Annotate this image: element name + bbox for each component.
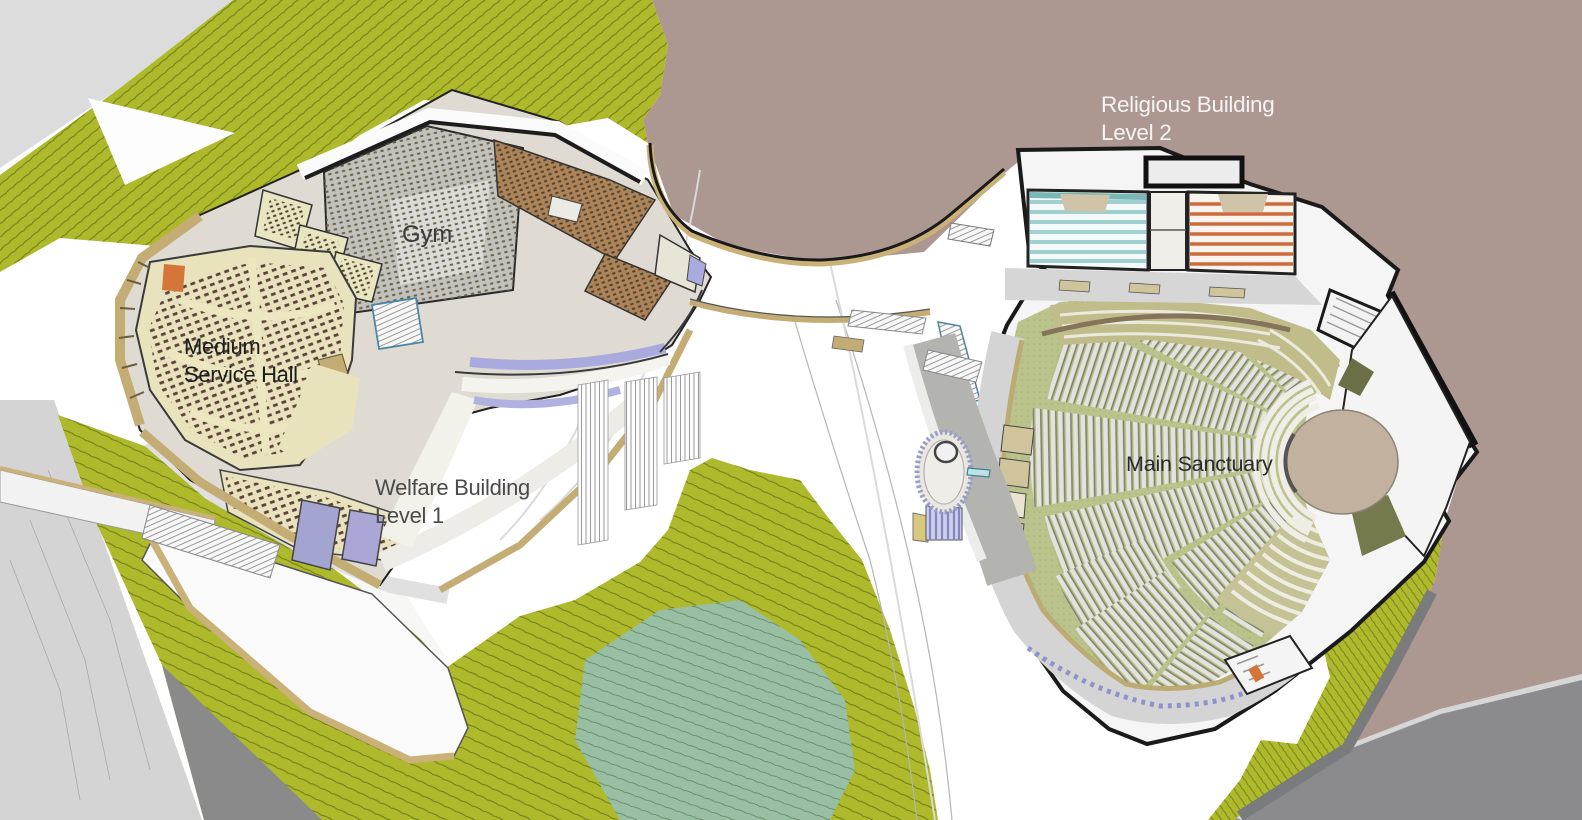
svg-text:Service Hall: Service Hall — [184, 362, 298, 387]
svg-text:Main Sanctuary: Main Sanctuary — [1126, 452, 1273, 476]
svg-text:Level 1: Level 1 — [375, 503, 444, 528]
svg-text:Gym: Gym — [402, 221, 452, 248]
svg-text:Level 2: Level 2 — [1101, 120, 1171, 145]
svg-text:Medium: Medium — [184, 334, 260, 359]
svg-text:Religious Building: Religious Building — [1101, 92, 1274, 117]
svg-text:Welfare Building: Welfare Building — [375, 475, 530, 500]
